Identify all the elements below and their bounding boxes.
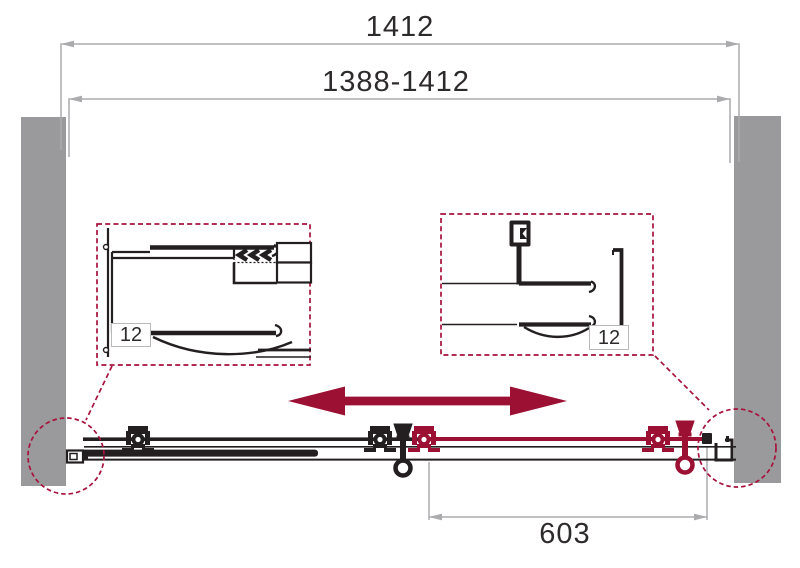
left-detail-adjustment-label: 12 [111,323,151,347]
door-track-assembly [66,421,736,476]
slide-direction-arrow [288,387,567,416]
right-detail-profile-drawing [442,221,622,337]
dimension-overall-width-label: 1412 [330,13,470,42]
adjustment-teeth-chevrons [239,250,271,260]
dim-line-adjustment-range [69,99,730,163]
right-wall [734,116,781,483]
roller-door-right [642,426,674,452]
dim-line-door-width [429,447,707,520]
right-detail-adjustment-label: 12 [589,325,629,350]
dim-line-overall-width [61,44,739,162]
dimension-adjustment-range-label: 1388-1412 [298,68,494,97]
left-wall [21,117,66,486]
right-detail-leader [655,356,709,410]
roller-door-left [408,426,440,452]
left-detail-leader [86,366,112,420]
drawing-canvas: 1412 1388-1412 603 12 12 [0,0,800,568]
roller-fixed-right [364,426,396,452]
fixed-panel-glass [80,450,318,457]
roller-fixed-left [122,426,154,452]
dimension-door-width-label: 603 [515,520,615,549]
